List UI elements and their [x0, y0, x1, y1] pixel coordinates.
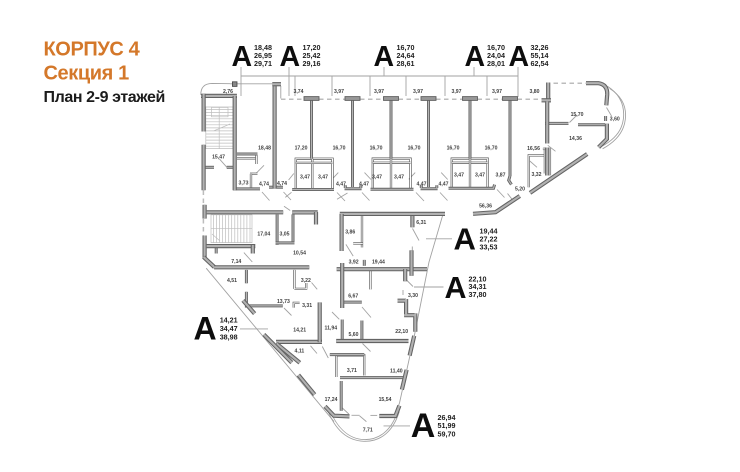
- svg-text:7,71: 7,71: [363, 428, 373, 434]
- svg-text:3,86: 3,86: [345, 229, 355, 235]
- svg-text:3,97: 3,97: [374, 89, 384, 95]
- svg-text:3,60: 3,60: [610, 116, 620, 122]
- svg-text:17,24: 17,24: [325, 397, 338, 403]
- svg-text:16,70: 16,70: [408, 146, 421, 152]
- svg-text:3,47: 3,47: [475, 172, 485, 178]
- svg-text:3,97: 3,97: [413, 89, 423, 95]
- svg-text:A: A: [411, 407, 436, 445]
- svg-text:5,60: 5,60: [348, 332, 358, 338]
- svg-text:A: A: [374, 41, 395, 73]
- svg-text:33,53: 33,53: [480, 242, 498, 251]
- svg-text:6,67: 6,67: [348, 294, 358, 300]
- svg-text:4,47: 4,47: [336, 181, 346, 187]
- svg-text:4,47: 4,47: [359, 181, 369, 187]
- svg-text:4,51: 4,51: [227, 278, 237, 284]
- svg-text:22,10: 22,10: [395, 329, 408, 335]
- svg-text:16,70: 16,70: [485, 146, 498, 152]
- svg-text:A: A: [232, 41, 253, 73]
- svg-text:4,11: 4,11: [295, 349, 305, 355]
- svg-text:3,47: 3,47: [372, 174, 382, 180]
- svg-text:КОРПУС 4: КОРПУС 4: [44, 39, 141, 61]
- svg-text:38,98: 38,98: [220, 332, 238, 341]
- svg-text:План 2-9 этажей: План 2-9 этажей: [44, 89, 165, 106]
- svg-text:28,61: 28,61: [397, 59, 415, 68]
- svg-text:3,73: 3,73: [238, 180, 248, 186]
- svg-text:3,05: 3,05: [279, 232, 289, 238]
- svg-text:59,70: 59,70: [438, 430, 456, 439]
- svg-text:3,71: 3,71: [347, 368, 357, 374]
- svg-text:14,36: 14,36: [569, 136, 582, 142]
- svg-text:16,56: 16,56: [527, 146, 540, 152]
- svg-text:18,48: 18,48: [258, 146, 271, 152]
- svg-text:6,31: 6,31: [416, 220, 426, 226]
- svg-text:3,31: 3,31: [302, 303, 312, 309]
- svg-text:16,70: 16,70: [333, 146, 346, 152]
- svg-text:28,01: 28,01: [487, 59, 505, 68]
- svg-text:3,97: 3,97: [492, 89, 502, 95]
- svg-text:16,70: 16,70: [447, 146, 460, 152]
- svg-text:17,20: 17,20: [295, 146, 308, 152]
- svg-text:29,16: 29,16: [303, 59, 321, 68]
- svg-text:3,92: 3,92: [349, 260, 359, 266]
- svg-text:A: A: [454, 222, 476, 257]
- svg-text:A: A: [509, 41, 530, 73]
- svg-text:3,47: 3,47: [454, 172, 464, 178]
- svg-text:A: A: [445, 271, 467, 305]
- svg-text:3,87: 3,87: [495, 173, 505, 179]
- svg-text:4,74: 4,74: [277, 181, 287, 187]
- svg-text:A: A: [280, 41, 301, 73]
- svg-text:Секция 1: Секция 1: [44, 63, 130, 85]
- svg-text:3,32: 3,32: [531, 172, 541, 178]
- svg-text:4,74: 4,74: [259, 181, 269, 187]
- svg-text:A: A: [194, 311, 217, 347]
- svg-text:4,47: 4,47: [416, 181, 426, 187]
- svg-text:14,21: 14,21: [293, 327, 306, 333]
- svg-text:29,71: 29,71: [254, 59, 272, 68]
- svg-text:19,44: 19,44: [372, 260, 385, 266]
- svg-text:15,70: 15,70: [571, 112, 584, 118]
- svg-text:3,97: 3,97: [451, 89, 461, 95]
- svg-text:3,22: 3,22: [301, 278, 311, 284]
- svg-text:13,73: 13,73: [277, 299, 290, 305]
- svg-text:37,80: 37,80: [469, 290, 487, 299]
- svg-text:11,40: 11,40: [390, 368, 403, 374]
- svg-text:5,20: 5,20: [515, 186, 525, 192]
- svg-text:62,54: 62,54: [531, 59, 549, 68]
- svg-text:3,80: 3,80: [529, 89, 539, 95]
- svg-text:2,76: 2,76: [223, 89, 233, 95]
- svg-text:11,94: 11,94: [325, 325, 338, 331]
- svg-text:3,47: 3,47: [318, 174, 328, 180]
- svg-text:3,30: 3,30: [408, 293, 418, 299]
- svg-text:3,97: 3,97: [334, 89, 344, 95]
- svg-text:3,74: 3,74: [293, 89, 303, 95]
- svg-text:56,36: 56,36: [479, 204, 492, 210]
- svg-text:7,14: 7,14: [231, 259, 241, 265]
- svg-text:3,47: 3,47: [394, 174, 404, 180]
- svg-text:A: A: [465, 41, 486, 73]
- svg-text:15,54: 15,54: [379, 397, 392, 403]
- svg-text:16,70: 16,70: [370, 146, 383, 152]
- svg-text:3,47: 3,47: [300, 174, 310, 180]
- svg-text:15,47: 15,47: [212, 155, 225, 161]
- svg-text:10,54: 10,54: [293, 250, 306, 256]
- svg-text:4,47: 4,47: [438, 181, 448, 187]
- svg-text:17,04: 17,04: [257, 232, 270, 238]
